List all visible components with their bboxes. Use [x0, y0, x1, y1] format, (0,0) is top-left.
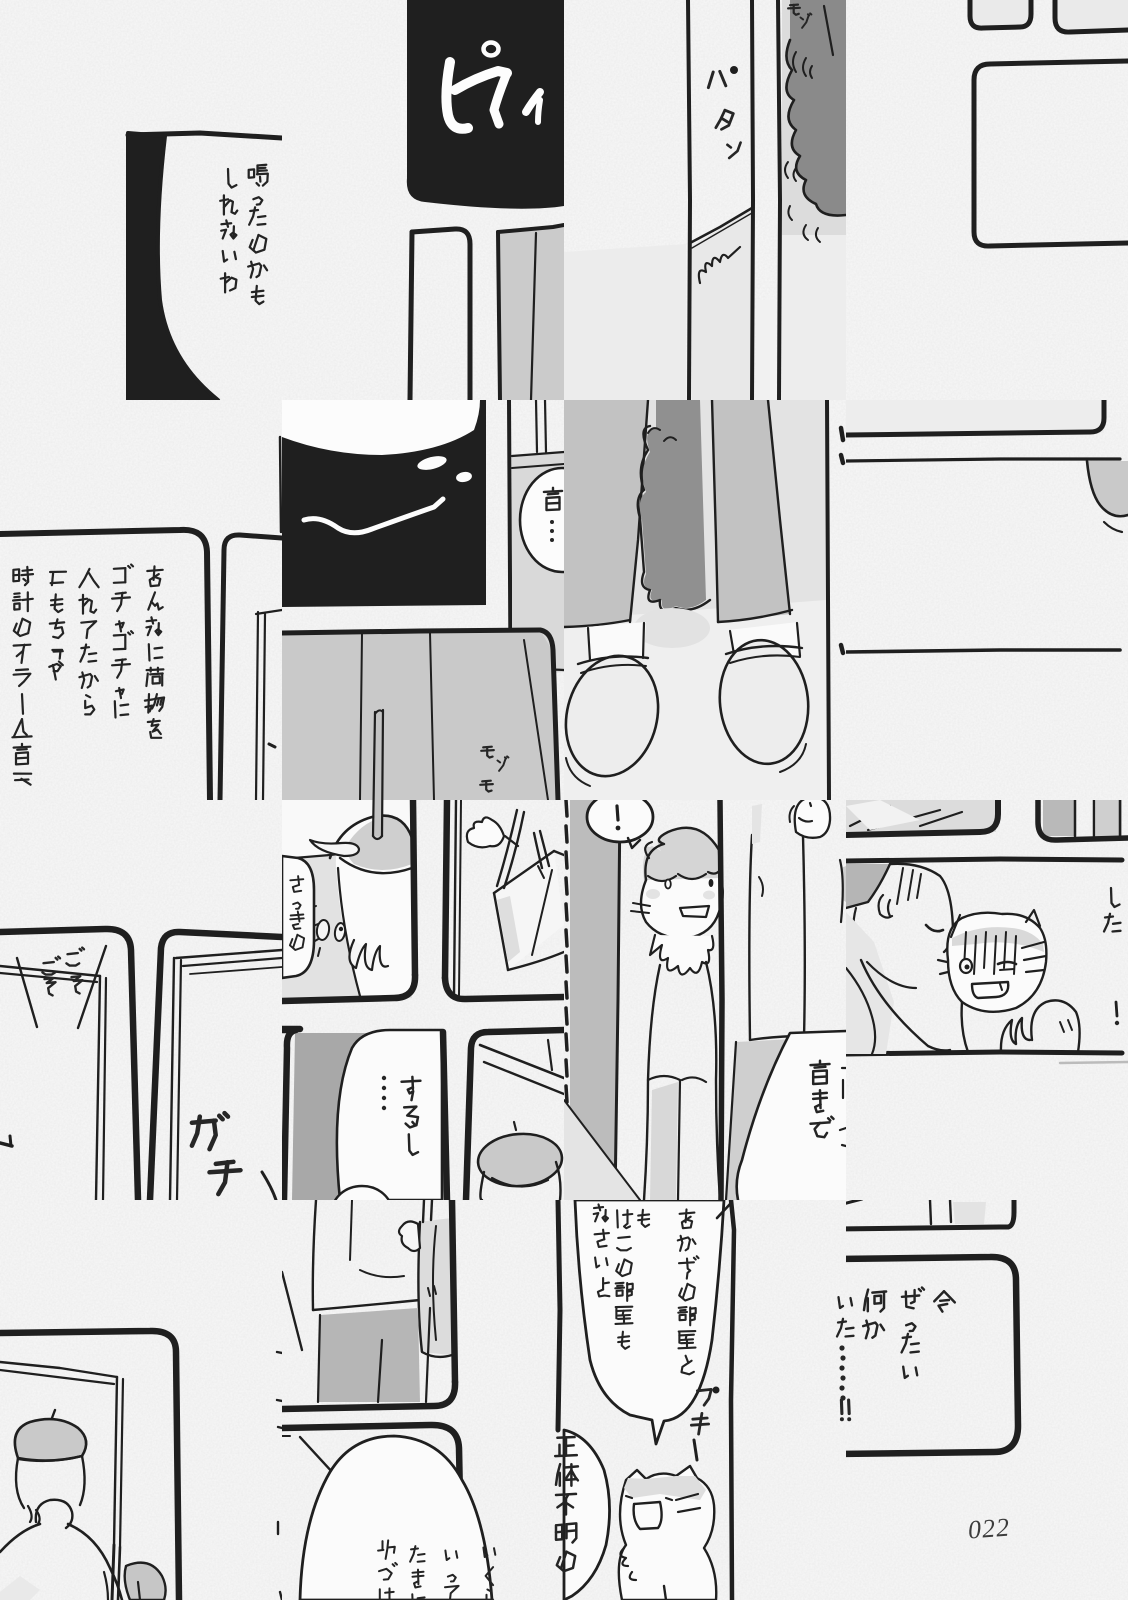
svg-text:022: 022 [967, 1513, 1011, 1545]
